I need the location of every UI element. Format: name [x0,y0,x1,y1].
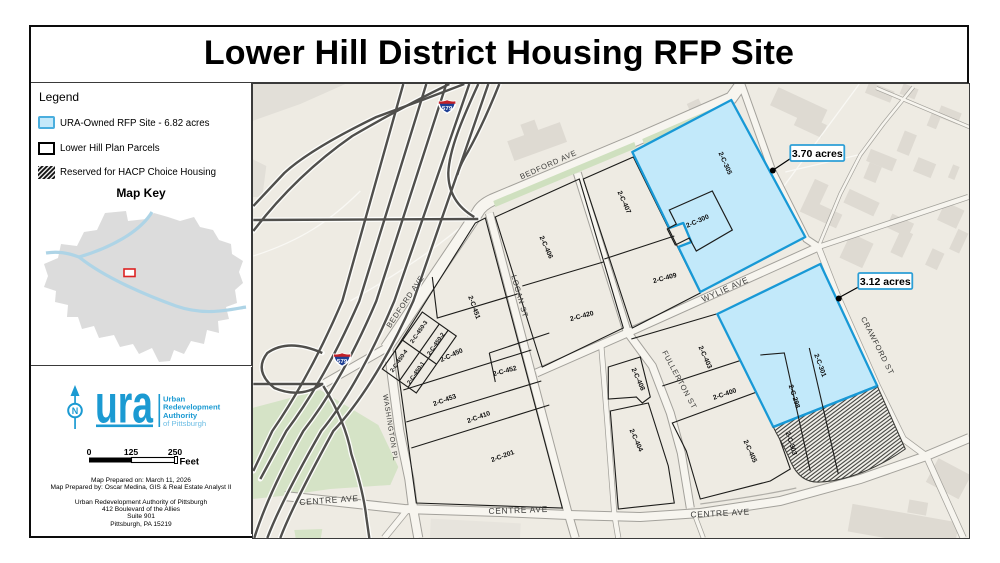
svg-text:of Pittsburgh: of Pittsburgh [163,419,206,428]
svg-text:3.70 acres: 3.70 acres [792,148,843,160]
svg-text:579: 579 [337,359,348,365]
svg-text:3.12 acres: 3.12 acres [860,276,911,288]
svg-text:250: 250 [168,447,183,457]
svg-text:CENTRE AVE: CENTRE AVE [488,503,548,515]
svg-text:N: N [72,406,79,416]
svg-text:125: 125 [124,447,139,457]
svg-text:579: 579 [442,106,453,112]
svg-text:0: 0 [87,447,92,457]
svg-text:Feet: Feet [180,457,200,468]
